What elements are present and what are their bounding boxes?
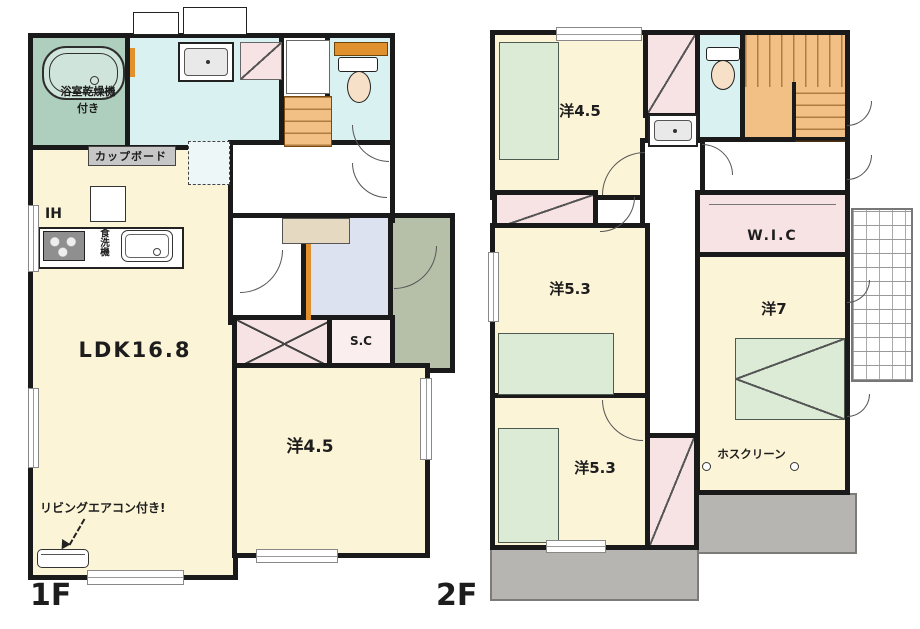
bed-western7-line-top xyxy=(736,339,844,379)
air-conditioner xyxy=(37,549,89,568)
window-2f-bottom xyxy=(546,540,606,553)
western53-bottom-label: 洋5.3 xyxy=(535,457,655,478)
door-arc-stairs-a xyxy=(847,101,872,126)
closet-2f-top xyxy=(648,35,695,113)
entrance-porch xyxy=(388,218,450,368)
ldk-label: LDK16.8 xyxy=(60,338,210,362)
toilet-shelf xyxy=(334,42,388,56)
door-arc-western53-middle xyxy=(600,197,635,232)
bed-western53-middle xyxy=(498,333,614,395)
bed-western7-line-bottom xyxy=(736,379,844,419)
kitchen-sink xyxy=(121,230,173,262)
aircon-note: リビングエアコン付き! xyxy=(40,499,210,516)
ih-label: IH xyxy=(45,206,62,222)
hoscreen-hook-left xyxy=(702,462,711,471)
bed-western7 xyxy=(735,338,845,420)
stairs-2f-rail xyxy=(792,82,796,138)
shoe-closet-label: S.C xyxy=(332,334,390,348)
window-left-a xyxy=(28,205,39,272)
western53-middle-label: 洋5.3 xyxy=(510,278,630,299)
walk-in-closet xyxy=(700,195,845,257)
balcony-bottom-left xyxy=(490,545,699,601)
toilet-1f xyxy=(347,71,371,103)
hallway-2f-center xyxy=(645,143,700,438)
window-western45-right xyxy=(420,378,432,460)
floor-label-1f: 1F xyxy=(30,578,71,613)
toilet-2f xyxy=(711,60,735,90)
floorplan-canvas: 浴室乾燥機付き カップボード IH 食洗機 LDK16.8 リビングエアコン付き… xyxy=(0,0,920,629)
linen-closet xyxy=(286,40,330,94)
bed-western53-bottom xyxy=(498,428,559,543)
refrigerator xyxy=(188,141,230,185)
bath-dryer-note: 浴室乾燥機付き xyxy=(58,84,118,117)
western45-1f-label: 洋4.5 xyxy=(240,432,380,457)
balcony-bottom-right xyxy=(697,493,857,554)
toilet-tank-2f xyxy=(706,47,740,61)
window-top-b xyxy=(183,7,247,35)
range-hood xyxy=(90,186,126,222)
dishwasher-label: 食洗機 xyxy=(96,228,110,268)
washbasin-2f xyxy=(648,114,698,147)
bath-door-accent xyxy=(130,48,135,77)
western-room-45-1f xyxy=(237,368,425,553)
window-western45-bottom xyxy=(256,549,338,563)
window-left-b xyxy=(28,388,39,468)
stairs-1f xyxy=(284,96,332,147)
washbasin-1f xyxy=(178,42,234,82)
hoscreen-label: ホスクリーン xyxy=(699,446,804,462)
wic-pipe xyxy=(709,204,837,205)
western45-2f-label: 洋4.5 xyxy=(520,100,640,121)
window-2f-top xyxy=(556,27,642,41)
closet-2f-bottom xyxy=(650,438,694,545)
toilet-tank-1f xyxy=(338,57,378,72)
closet-1f xyxy=(237,320,332,368)
western7-label: 洋7 xyxy=(714,298,834,319)
window-top-a xyxy=(133,12,179,35)
floor-label-2f: 2F xyxy=(436,578,477,613)
entrance-step-accent xyxy=(306,242,311,320)
window-ldk-bottom xyxy=(87,570,184,585)
stairs-2f-treads-right xyxy=(795,87,845,142)
shoe-cabinet xyxy=(282,218,350,244)
wic-label: W.I.C xyxy=(700,228,845,244)
window-2f-left xyxy=(488,252,499,322)
washroom-closet xyxy=(240,42,282,80)
hoscreen-hook-right xyxy=(790,462,799,471)
closet-2f-mid-band xyxy=(497,195,593,228)
door-arc-balcony-b xyxy=(847,394,870,417)
ih-stove xyxy=(43,231,85,261)
door-arc-stairs-b xyxy=(847,155,872,180)
stairs-2f-treads-top xyxy=(745,35,845,87)
cupboard-label: カップボード xyxy=(88,148,174,164)
